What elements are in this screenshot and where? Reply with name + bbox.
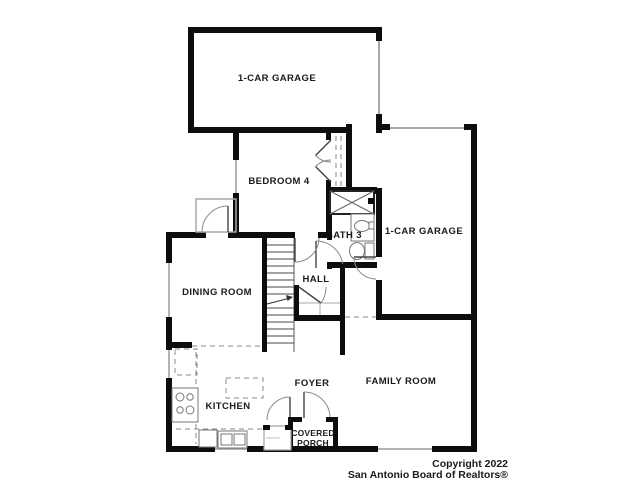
garage-right-label: 1-CAR GARAGE (385, 226, 463, 237)
garage-top-label: 1-CAR GARAGE (238, 73, 316, 84)
copyright-notice: Copyright 2022 San Antonio Board of Real… (348, 458, 508, 480)
family-label: FAMILY ROOM (366, 376, 436, 387)
side-entry-door (202, 206, 228, 232)
porch-label-line1: COVERED (291, 428, 334, 438)
kitchen-sink-fixture (218, 431, 247, 448)
bedroom4-label: BEDROOM 4 (248, 176, 309, 187)
double-door (316, 140, 332, 182)
front-door (304, 392, 330, 418)
dishwasher (199, 430, 217, 447)
stoop (263, 425, 292, 450)
shower-fixture (330, 191, 374, 214)
foyer: FOYER (295, 378, 330, 418)
stove-fixture (172, 388, 198, 422)
floor-plan: 1-CAR GARAGE 1-CAR GARAGE BEDROOM 4 (0, 0, 640, 480)
stairs (262, 238, 294, 352)
hall-closet (294, 285, 345, 321)
kitchen-island (226, 378, 263, 398)
pantry-cabinet (175, 349, 197, 375)
garage-right: 1-CAR GARAGE (346, 124, 477, 452)
garage-top: 1-CAR GARAGE (188, 27, 390, 133)
porch-label-line2: PORCH (297, 438, 329, 448)
bedroom-4: BEDROOM 4 (233, 133, 341, 238)
family-room: FAMILY ROOM (366, 376, 436, 387)
floor-plan-drawing: 1-CAR GARAGE 1-CAR GARAGE BEDROOM 4 (0, 0, 640, 480)
foyer-label: FOYER (295, 378, 330, 389)
copyright-line2: San Antonio Board of Realtors® (348, 469, 508, 480)
dining-label: DINING ROOM (182, 287, 252, 298)
stairs-direction-arrow (267, 295, 293, 304)
hall-label: HALL (303, 274, 330, 285)
kitchen-label: KITCHEN (205, 401, 250, 412)
covered-porch: COVERED PORCH (263, 417, 338, 452)
kitchen-foyer-door (267, 397, 290, 420)
